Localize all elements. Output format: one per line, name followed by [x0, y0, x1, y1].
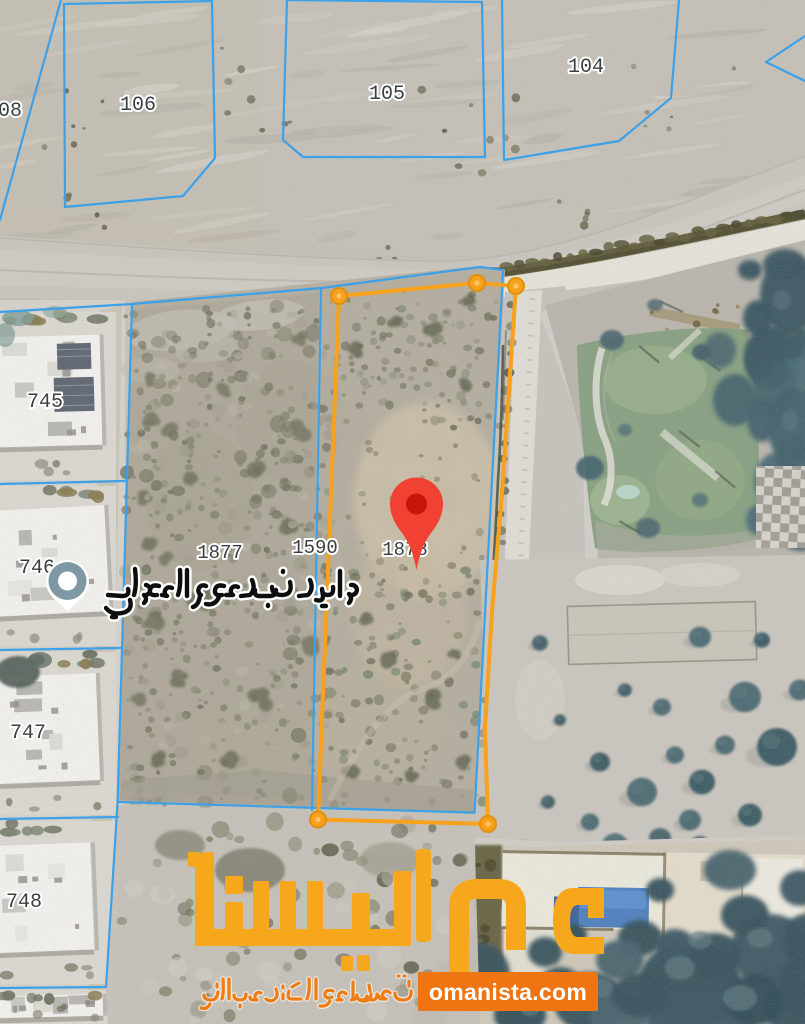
svg-text:08: 08 — [0, 100, 22, 123]
svg-text:105: 105 — [369, 83, 405, 106]
svg-text:omanista.com: omanista.com — [429, 979, 587, 1005]
svg-text:106: 106 — [120, 94, 156, 117]
svg-text:104: 104 — [568, 56, 604, 79]
svg-text:748: 748 — [6, 891, 42, 914]
svg-text:1590: 1590 — [292, 537, 338, 559]
svg-text:1877: 1877 — [197, 542, 243, 564]
svg-text:745: 745 — [27, 391, 63, 414]
svg-text:747: 747 — [10, 722, 46, 745]
